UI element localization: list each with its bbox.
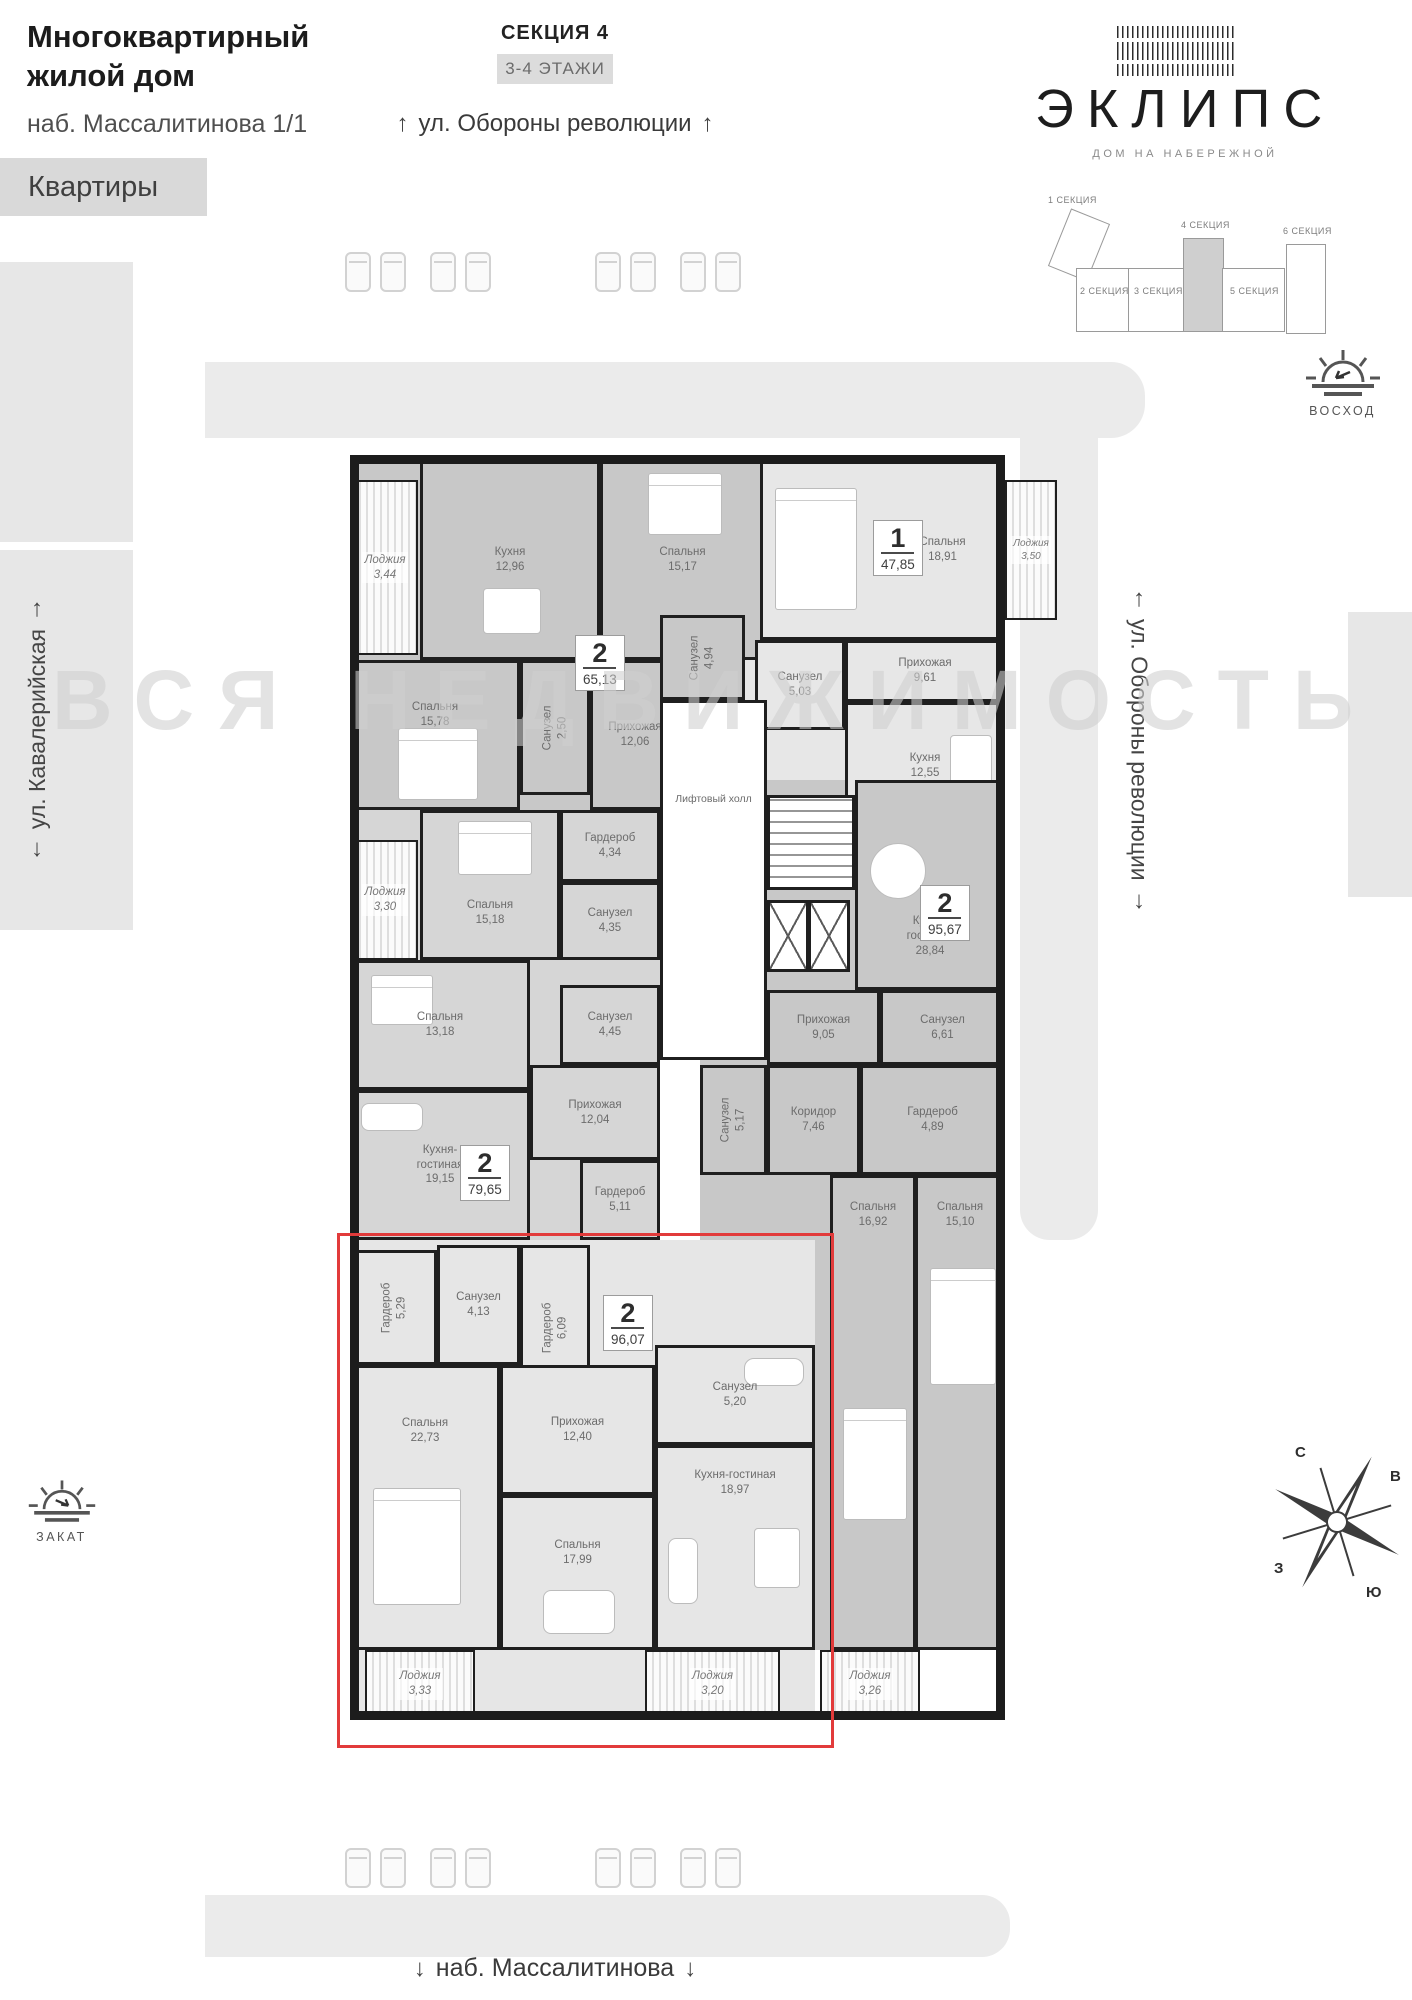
dining-table-icon	[483, 588, 541, 634]
lift-hall: Лифтовый холл	[660, 700, 767, 1060]
section-4-box[interactable]	[1183, 238, 1224, 332]
sunrise-icon	[1304, 348, 1382, 400]
street-label-bottom: ↓наб. Массалитинова↓	[355, 1954, 755, 1983]
dining-table-icon	[870, 843, 926, 899]
section-3-box[interactable]	[1128, 268, 1185, 332]
section-5-label: 5 СЕКЦИЯ	[1230, 286, 1279, 296]
section-2-box[interactable]	[1076, 268, 1130, 332]
parked-cars-icon	[430, 1848, 491, 1888]
room-hallway: Прихожая9,05	[767, 990, 880, 1065]
room-bedroom: Спальня15,10	[915, 1175, 1005, 1650]
section-4-label: 4 СЕКЦИЯ	[1181, 220, 1230, 230]
compass-north: С	[1295, 1444, 1306, 1461]
watermark: ВСЯ НЕДВИЖИМОСТЬ	[52, 652, 1382, 749]
parked-cars-icon	[430, 252, 491, 292]
room-kitchen: Кухня12,96	[420, 460, 600, 660]
apartment-badge-47[interactable]: 147,85	[873, 520, 923, 576]
arrow-up-icon: ↑	[387, 110, 419, 137]
room-loggia: Лоджия3,30	[352, 840, 418, 960]
sunset-icon	[27, 1478, 97, 1526]
arrow-down-icon: ↓	[674, 1955, 706, 1982]
stairs-icon	[767, 795, 855, 890]
compass-rose: С В З Ю	[1262, 1442, 1412, 1602]
section-1-label: 1 СЕКЦИЯ	[1048, 195, 1097, 205]
apartment-badge-95[interactable]: 295,67	[920, 885, 970, 941]
section-6-box[interactable]	[1286, 244, 1326, 334]
compass-south: Ю	[1366, 1584, 1381, 1601]
compass-west: З	[1274, 1560, 1283, 1577]
arrow-up-icon: ↑	[692, 110, 724, 137]
street-label-right: ↑ ул. Обороны революции ↓	[1106, 585, 1172, 985]
room-wardrobe: Гардероб4,34	[560, 810, 660, 882]
street-label-top: ↑ул. Обороны революции↑	[355, 110, 755, 138]
room-loggia: Лоджия3,26	[820, 1650, 920, 1718]
sunrise-marker: ВОСХОД	[1280, 348, 1405, 418]
arrow-up-icon: ↑	[1123, 585, 1155, 613]
section-title: СЕКЦИЯ 4	[430, 22, 680, 45]
parked-cars-icon	[680, 252, 741, 292]
parked-cars-icon	[345, 252, 406, 292]
building-address: наб. Массалитинова 1/1	[27, 110, 307, 139]
room-bedroom: Спальня16,92	[830, 1175, 916, 1650]
parked-cars-icon	[595, 1848, 656, 1888]
logo-tagline: ДОМ НА НАБЕРЕЖНОЙ	[1035, 148, 1335, 160]
compass-icon	[1262, 1442, 1412, 1602]
room-bathroom: Санузел6,61	[880, 990, 1005, 1065]
sunrise-label: ВОСХОД	[1309, 404, 1376, 418]
room-wardrobe: Гардероб4,89	[860, 1065, 1005, 1175]
room-corridor: Коридор7,46	[767, 1065, 860, 1175]
sunset-label: ЗАКАТ	[36, 1530, 87, 1544]
room-loggia: Лоджия3,44	[352, 480, 418, 655]
highlighted-apartment-frame[interactable]	[337, 1233, 834, 1748]
logo-art-icon	[1117, 26, 1237, 76]
section-2-label: 2 СЕКЦИЯ	[1080, 286, 1129, 296]
compass-east: В	[1390, 1468, 1401, 1485]
room-bathroom: Санузел4,45	[560, 985, 660, 1065]
room-wardrobe: Гардероб5,11	[580, 1160, 660, 1240]
bed-icon	[930, 1268, 996, 1385]
room-bedroom: Спальня13,18	[350, 960, 530, 1090]
room-loggia: Лоджия3,50	[1005, 480, 1057, 620]
arrow-down-icon: ↓	[1123, 887, 1155, 915]
room-bedroom: Спальня15,18	[420, 810, 560, 960]
section-3-label: 3 СЕКЦИЯ	[1134, 286, 1183, 296]
elevator-icon	[767, 900, 809, 972]
room-bathroom: Санузел5,17	[700, 1065, 767, 1175]
bed-icon	[648, 473, 722, 535]
road-bottom	[205, 1895, 1010, 1957]
road-top	[205, 362, 1145, 438]
arrow-down-icon: ↓	[21, 835, 53, 863]
arrow-up-icon: ↑	[21, 595, 53, 623]
parked-cars-icon	[595, 252, 656, 292]
sunset-marker: ЗАКАТ	[14, 1478, 109, 1544]
parked-cars-icon	[345, 1848, 406, 1888]
bed-icon	[843, 1408, 907, 1520]
page-title: Многоквартирныйжилой дом	[27, 18, 309, 96]
apartment-badge-79[interactable]: 279,65	[460, 1145, 510, 1201]
arrow-down-icon: ↓	[404, 1955, 436, 1982]
sofa-icon	[361, 1103, 423, 1131]
flats-button[interactable]: Квартиры	[0, 158, 207, 216]
floors-badge: 3-4 ЭТАЖИ	[497, 54, 613, 84]
section-5-box[interactable]	[1222, 268, 1285, 332]
room-bathroom: Санузел4,35	[560, 882, 660, 960]
elevator-icon	[808, 900, 850, 972]
parked-cars-icon	[680, 1848, 741, 1888]
neighbor-building-left-1	[0, 262, 133, 542]
logo-name: ЭКЛИПС	[1035, 78, 1335, 140]
room-hallway: Прихожая12,04	[530, 1065, 660, 1160]
section-6-label: 6 СЕКЦИЯ	[1283, 226, 1332, 236]
